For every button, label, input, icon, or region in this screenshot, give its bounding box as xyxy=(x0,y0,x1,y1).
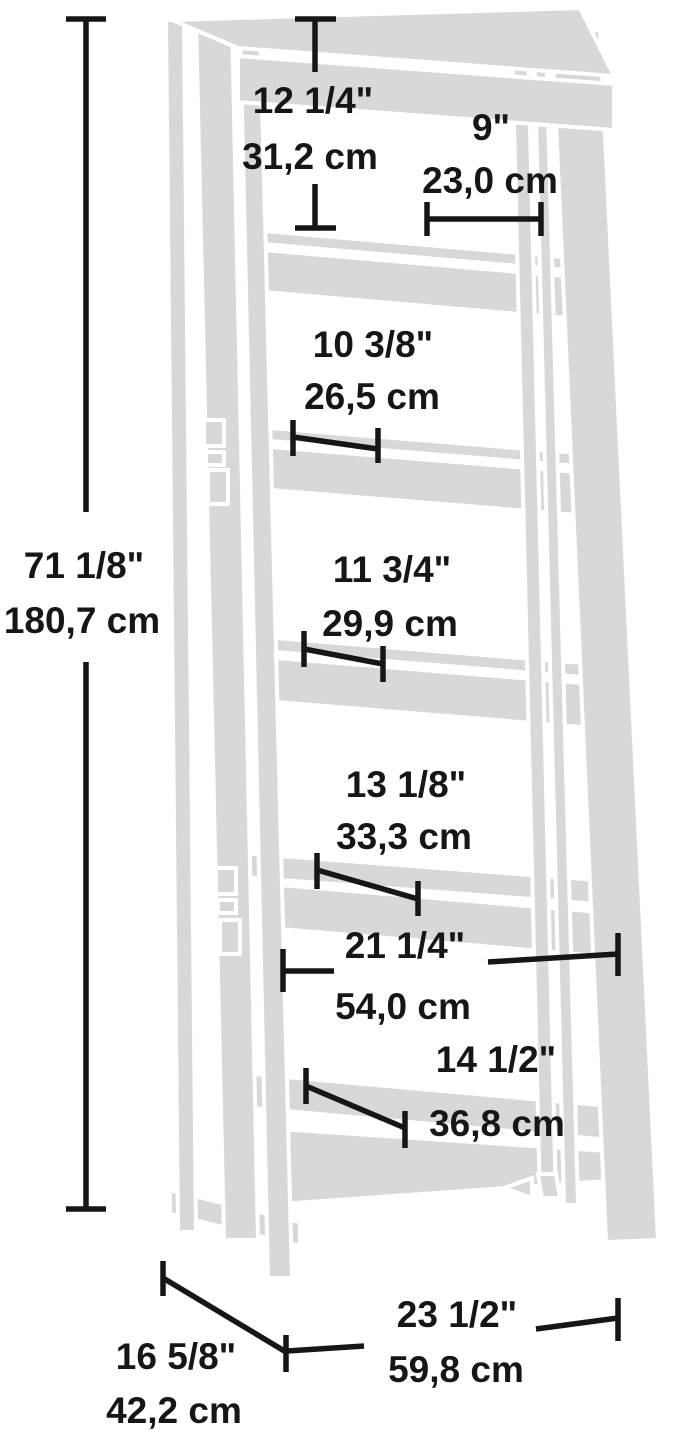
top-shelf-depth-inches-label: 9" xyxy=(472,107,510,148)
right-foot-block xyxy=(538,1174,560,1198)
third-shelf-depth-inches-label: 11 3/4" xyxy=(333,549,451,590)
bookshelf-dimension-diagram: 12 1/4" 31,2 cm 9" 23,0 cm 10 3/8" 26,5 … xyxy=(0,0,679,1431)
interior-width-cm-label: 54,0 cm xyxy=(335,986,471,1027)
fourth-shelf-depth-cm-label: 33,3 cm xyxy=(336,816,472,857)
top-opening-height-cm-label: 31,2 cm xyxy=(242,136,378,177)
fourth-shelf-depth-inches-label: 13 1/8" xyxy=(346,764,466,805)
left-shelf-cleat xyxy=(204,420,224,446)
dimension-diagram-page: 12 1/4" 31,2 cm 9" 23,0 cm 10 3/8" 26,5 … xyxy=(0,0,679,1431)
left-shelf-cleat xyxy=(220,920,240,954)
bottom-shelf-depth-inches-label: 14 1/2" xyxy=(436,1039,556,1080)
top-opening-height-inches-label: 12 1/4" xyxy=(253,80,373,121)
overall-width-cm-label: 59,8 cm xyxy=(388,1349,524,1390)
overall-depth-inches-label: 16 5/8" xyxy=(116,1336,236,1377)
overall-width-inches-label: 23 1/2" xyxy=(397,1294,517,1335)
left-back-leg xyxy=(166,20,196,1232)
left-shelf-cleat xyxy=(206,452,224,465)
top-shelf-depth-cm-label: 23,0 cm xyxy=(422,160,558,201)
bottom-shelf-depth-cm-label: 36,8 cm xyxy=(429,1103,565,1144)
overall-height-inches-label: 71 1/8" xyxy=(24,545,144,586)
interior-width-inches-label: 21 1/4" xyxy=(345,925,465,966)
overall-depth-cm-label: 42,2 cm xyxy=(106,1390,242,1431)
left-shelf-cleat xyxy=(216,868,236,894)
third-shelf-depth-cm-label: 29,9 cm xyxy=(322,603,458,644)
overall-height-cm-label: 180,7 cm xyxy=(4,600,160,641)
left-shelf-cleat xyxy=(208,470,228,504)
left-shelf-cleat xyxy=(218,900,236,913)
second-shelf-depth-inches-label: 10 3/8" xyxy=(313,324,433,365)
second-shelf-depth-cm-label: 26,5 cm xyxy=(304,376,440,417)
